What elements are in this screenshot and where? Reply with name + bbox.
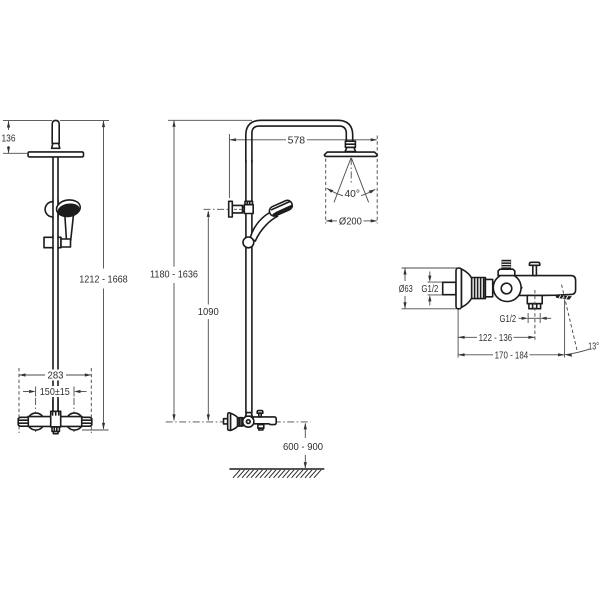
svg-text:600 - 900: 600 - 900 [283,441,323,453]
svg-text:150±15: 150±15 [40,386,70,398]
svg-text:122 - 136: 122 - 136 [479,332,513,344]
svg-text:1180 - 1636: 1180 - 1636 [150,269,198,281]
svg-text:13°: 13° [588,340,599,352]
svg-text:Ø63: Ø63 [399,283,413,295]
svg-text:283: 283 [48,370,64,382]
svg-text:170 - 184: 170 - 184 [495,349,529,361]
svg-text:1212 - 1668: 1212 - 1668 [79,274,128,286]
svg-text:G1/2: G1/2 [500,313,517,325]
svg-text:40°: 40° [344,188,360,200]
svg-text:136: 136 [2,133,16,145]
svg-text:Ø200: Ø200 [339,216,362,228]
svg-text:G1/2: G1/2 [421,283,438,295]
svg-text:1090: 1090 [198,306,219,318]
svg-text:578: 578 [288,134,306,146]
